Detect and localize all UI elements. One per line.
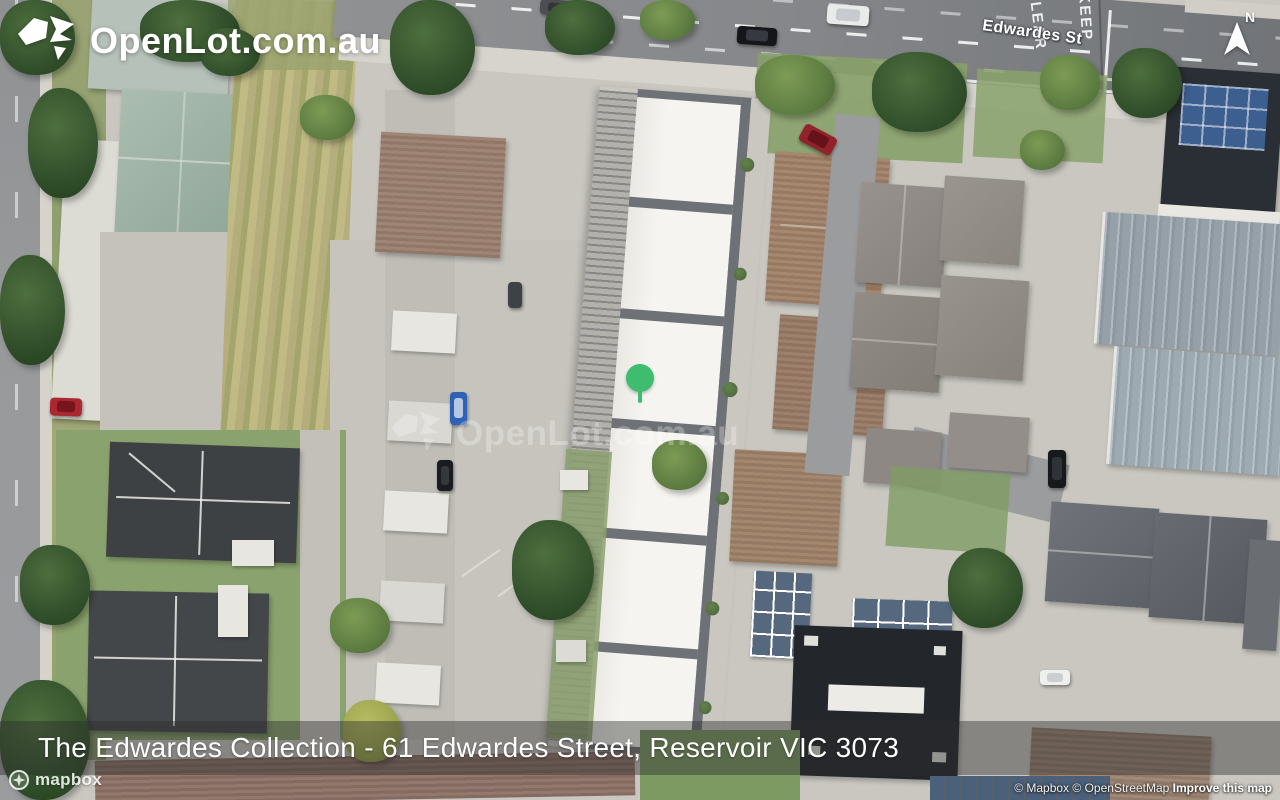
taupe-unit-roof xyxy=(849,292,945,393)
mapbox-wordmark: mapbox xyxy=(35,770,102,790)
tree-canopy xyxy=(28,88,98,198)
car-red xyxy=(50,397,83,416)
tree-canopy xyxy=(948,548,1023,628)
car-black xyxy=(1048,450,1066,488)
porch-roof xyxy=(232,540,274,566)
map-attribution: © Mapbox © OpenStreetMap Improve this ma… xyxy=(1014,781,1272,795)
taupe-unit-roof xyxy=(946,412,1030,472)
unit-roof xyxy=(391,310,457,353)
dark-hip-roof xyxy=(1045,501,1160,608)
satellite-map-viewport[interactable]: KEEP CLEAR Edwardes St OpenLot.com.au Th… xyxy=(0,0,1280,800)
mapbox-icon xyxy=(8,769,30,791)
lawn-pocket xyxy=(885,466,1010,554)
tree-canopy xyxy=(0,255,65,365)
solar-panel-array xyxy=(1179,83,1269,151)
van-white xyxy=(826,4,869,27)
tree-canopy xyxy=(545,0,615,55)
taupe-unit-roof xyxy=(935,275,1030,381)
metal-roof xyxy=(1094,212,1280,357)
tree-canopy xyxy=(640,0,695,40)
metal-roof xyxy=(1106,346,1280,476)
tree-canopy xyxy=(390,0,475,95)
marker-stem xyxy=(638,390,642,403)
unit-roof xyxy=(379,580,445,623)
tree-canopy xyxy=(755,55,835,115)
path-bottom-left xyxy=(300,430,340,740)
taupe-unit-roof xyxy=(939,175,1025,265)
brown-house-roof xyxy=(375,132,506,258)
roof-white-strip xyxy=(828,684,925,713)
tree-canopy xyxy=(300,95,355,140)
north-indicator: N xyxy=(1222,8,1270,60)
openlot-logo[interactable]: OpenLot.com.au xyxy=(16,12,381,69)
unit-roof xyxy=(383,490,449,533)
tree-canopy xyxy=(20,545,90,625)
car-black xyxy=(736,26,777,47)
taupe-unit-roof xyxy=(855,182,950,288)
tree-canopy xyxy=(872,52,967,132)
north-arrow-icon xyxy=(1222,21,1252,57)
address-banner: The Edwardes Collection - 61 Edwardes St… xyxy=(0,721,1280,775)
map-watermark: OpenLot.com.au xyxy=(390,408,739,459)
skylight xyxy=(934,646,946,655)
car-dark xyxy=(437,460,453,491)
white-roof-block xyxy=(594,538,706,650)
openlot-logo-text: OpenLot.com.au xyxy=(90,20,381,62)
attribution-osm[interactable]: © OpenStreetMap xyxy=(1072,781,1169,795)
property-marker[interactable] xyxy=(626,364,654,404)
tree-canopy xyxy=(1112,48,1182,118)
tree-canopy xyxy=(330,598,390,653)
marker-head xyxy=(626,364,654,392)
attribution-mapbox[interactable]: © Mapbox xyxy=(1014,781,1069,795)
tree-canopy xyxy=(1040,55,1100,110)
garden-shed xyxy=(560,470,588,490)
concrete-yard-left xyxy=(100,232,235,432)
skylight xyxy=(804,635,818,645)
tree-canopy xyxy=(1020,130,1065,170)
improve-this-map-link[interactable]: Improve this map xyxy=(1173,781,1272,795)
car-white xyxy=(1040,670,1070,685)
porch-roof xyxy=(218,585,248,637)
white-roof-block xyxy=(629,97,741,205)
mapbox-logo[interactable]: mapbox xyxy=(8,769,102,791)
car-dark xyxy=(508,282,522,308)
tree-canopy xyxy=(512,520,594,620)
openlot-logo-icon xyxy=(16,12,80,69)
watermark-text: OpenLot.com.au xyxy=(456,414,739,454)
dark-hip-roof xyxy=(1242,539,1280,651)
unit-roof xyxy=(375,662,441,705)
property-address-title: The Edwardes Collection - 61 Edwardes St… xyxy=(0,732,899,764)
garden-shed xyxy=(556,640,586,662)
white-roof-block xyxy=(621,207,733,317)
openlot-watermark-icon xyxy=(390,408,446,459)
